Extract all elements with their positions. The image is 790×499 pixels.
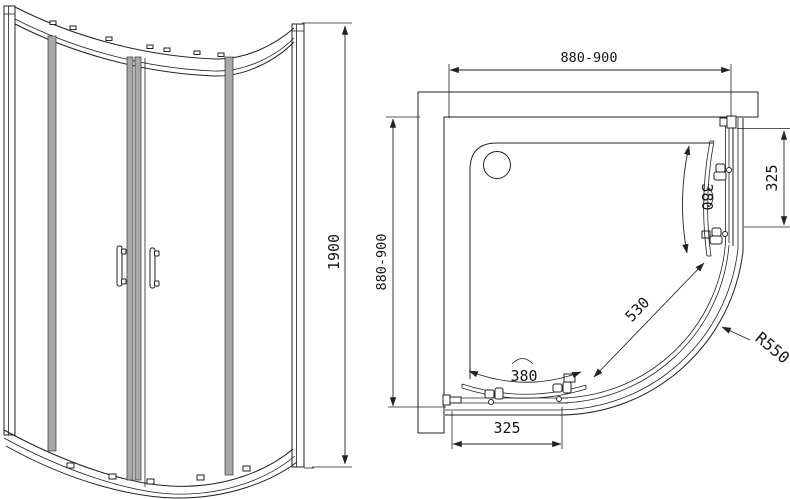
- radius-annotation: R550: [722, 327, 790, 367]
- shower-tray: [470, 143, 713, 379]
- radius-label: R550: [752, 328, 790, 367]
- plan-depth-label: 880-900: [374, 234, 390, 291]
- side-door-label: 380: [698, 183, 716, 210]
- front-elevation-view: 1900: [4, 6, 352, 498]
- rail-clips: [50, 21, 224, 57]
- plan-width-label: 880-900: [561, 50, 618, 66]
- front-panel-label: 325: [493, 419, 520, 437]
- front-height-label: 1900: [325, 234, 343, 270]
- side-panel-label: 325: [763, 164, 781, 191]
- side-panel-dimension: 325: [737, 129, 790, 228]
- bottom-rollers: [67, 463, 250, 484]
- front-panel-dimension: 325: [452, 407, 562, 449]
- right-door-handle: [150, 248, 159, 288]
- left-wall-profile: [4, 6, 15, 435]
- top-curved-rail: [15, 7, 294, 76]
- door-stiles: [48, 36, 233, 487]
- right-wall-profile: [292, 24, 314, 468]
- drain-circle: [484, 152, 511, 179]
- left-door-handle: [117, 246, 126, 286]
- opening-dimension: 530: [594, 263, 704, 377]
- front-height-dimension: 1900: [302, 23, 352, 467]
- right-fixed-panel: [702, 116, 736, 246]
- plan-view: 880-900 880-900 325 325 380: [374, 50, 790, 449]
- front-door-label: 380: [510, 367, 537, 385]
- technical-drawing-page: 1900: [0, 0, 790, 499]
- shower-enclosure-drawing: 1900: [0, 0, 790, 499]
